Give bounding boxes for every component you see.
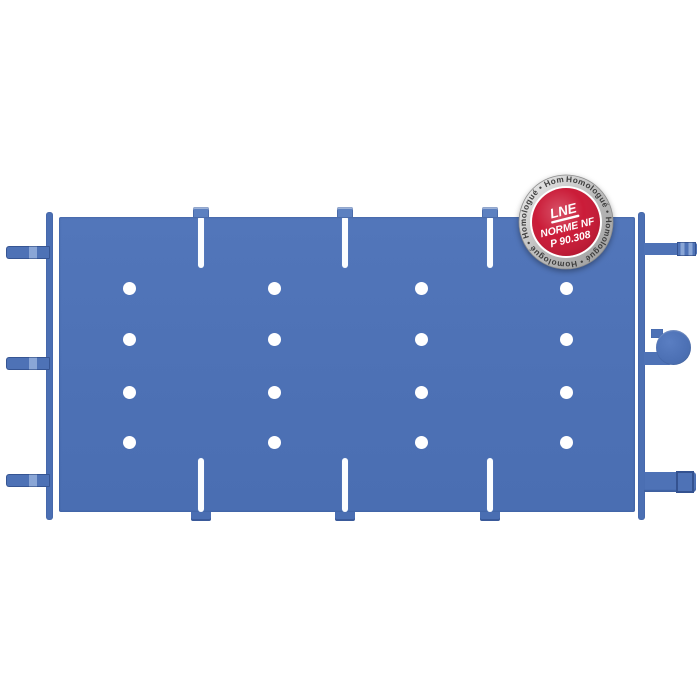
rivet-hole	[560, 333, 573, 346]
joint-nub-bottom	[335, 512, 355, 521]
joint-nub-bottom	[480, 512, 500, 521]
rivet-hole	[123, 333, 136, 346]
mount-tab-left	[6, 246, 50, 259]
joint-slot-top	[487, 216, 493, 268]
joint-nub-top	[193, 207, 209, 218]
mount-tab-left	[6, 474, 50, 487]
hinge-sleeve-top-right	[677, 242, 696, 256]
rivet-hole	[123, 386, 136, 399]
rivet-hole	[268, 333, 281, 346]
rivet-hole	[123, 282, 136, 295]
joint-slot-top	[198, 216, 204, 268]
latch-knob	[656, 330, 691, 365]
rivet-hole	[560, 386, 573, 399]
rivet-hole	[268, 282, 281, 295]
hinge-sleeve-bottom-right	[676, 471, 694, 493]
joint-slot-top	[342, 216, 348, 268]
joint-slot-bottom	[342, 458, 348, 512]
product-image: Homologué • Homologué • Homologué • Homo…	[0, 0, 700, 700]
rivet-hole	[415, 333, 428, 346]
rivet-hole	[268, 386, 281, 399]
rivet-hole	[415, 436, 428, 449]
rivet-hole	[123, 436, 136, 449]
joint-slot-bottom	[198, 458, 204, 512]
joint-slot-bottom	[487, 458, 493, 512]
joint-nub-bottom	[191, 512, 211, 521]
mount-tab-left	[6, 357, 50, 370]
rivet-hole	[415, 386, 428, 399]
joint-nub-top	[482, 207, 498, 218]
joint-nub-top	[337, 207, 353, 218]
rivet-hole	[415, 282, 428, 295]
rivet-hole	[268, 436, 281, 449]
rivet-hole	[560, 282, 573, 295]
certification-badge: Homologué • Homologué • Homologué • Homo…	[516, 172, 616, 272]
rivet-hole	[560, 436, 573, 449]
